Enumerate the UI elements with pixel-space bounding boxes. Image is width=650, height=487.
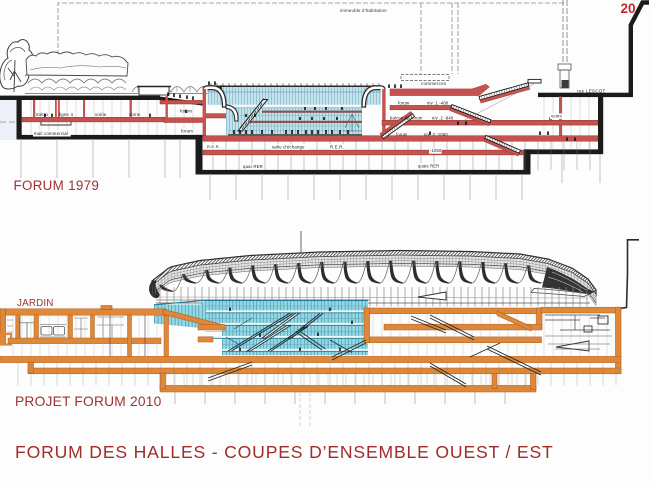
svg-text:forum: forum <box>396 132 408 137</box>
svg-text:niv .2 -840: niv .2 -840 <box>432 115 454 120</box>
svg-text:ligne 4: ligne 4 <box>59 112 73 117</box>
svg-text:JARDIN: JARDIN <box>17 298 54 309</box>
svg-text:immeuble d'habitation: immeuble d'habitation <box>340 8 387 13</box>
svg-text:quais RER: quais RER <box>418 164 439 169</box>
svg-text:forum: forum <box>181 129 193 134</box>
svg-text:forum: forum <box>180 109 192 114</box>
svg-text:salle d'échange: salle d'échange <box>272 144 305 149</box>
svg-text:-1050: -1050 <box>430 148 442 153</box>
svg-text:commerces: commerces <box>421 81 447 86</box>
svg-text:voirie: voirie <box>95 112 107 117</box>
svg-text:niv .1 -400: niv .1 -400 <box>427 101 449 106</box>
svg-text:PROJET FORUM 2010: PROJET FORUM 2010 <box>15 394 162 409</box>
svg-text:voirie: voirie <box>551 114 563 119</box>
svg-text:20: 20 <box>621 1 636 16</box>
svg-text:voirie: voirie <box>129 112 141 117</box>
svg-text:mail commercial: mail commercial <box>34 131 68 136</box>
svg-text:FORUM 1979: FORUM 1979 <box>14 178 100 193</box>
svg-text:R.E.R.: R.E.R. <box>330 144 344 149</box>
svg-text:R.E.R.: R.E.R. <box>207 144 220 149</box>
svg-text:balcon du forum: balcon du forum <box>390 115 423 120</box>
svg-text:forum: forum <box>398 101 410 106</box>
svg-text:quai RER: quai RER <box>243 164 263 169</box>
svg-text:FORUM DES HALLES - COUPES D’EN: FORUM DES HALLES - COUPES D’ENSEMBLE OUE… <box>15 442 554 462</box>
svg-text:rue LESCOT: rue LESCOT <box>577 88 606 93</box>
svg-text:métro: métro <box>36 112 48 117</box>
svg-text:niv .3 -1060: niv .3 -1060 <box>424 132 448 137</box>
